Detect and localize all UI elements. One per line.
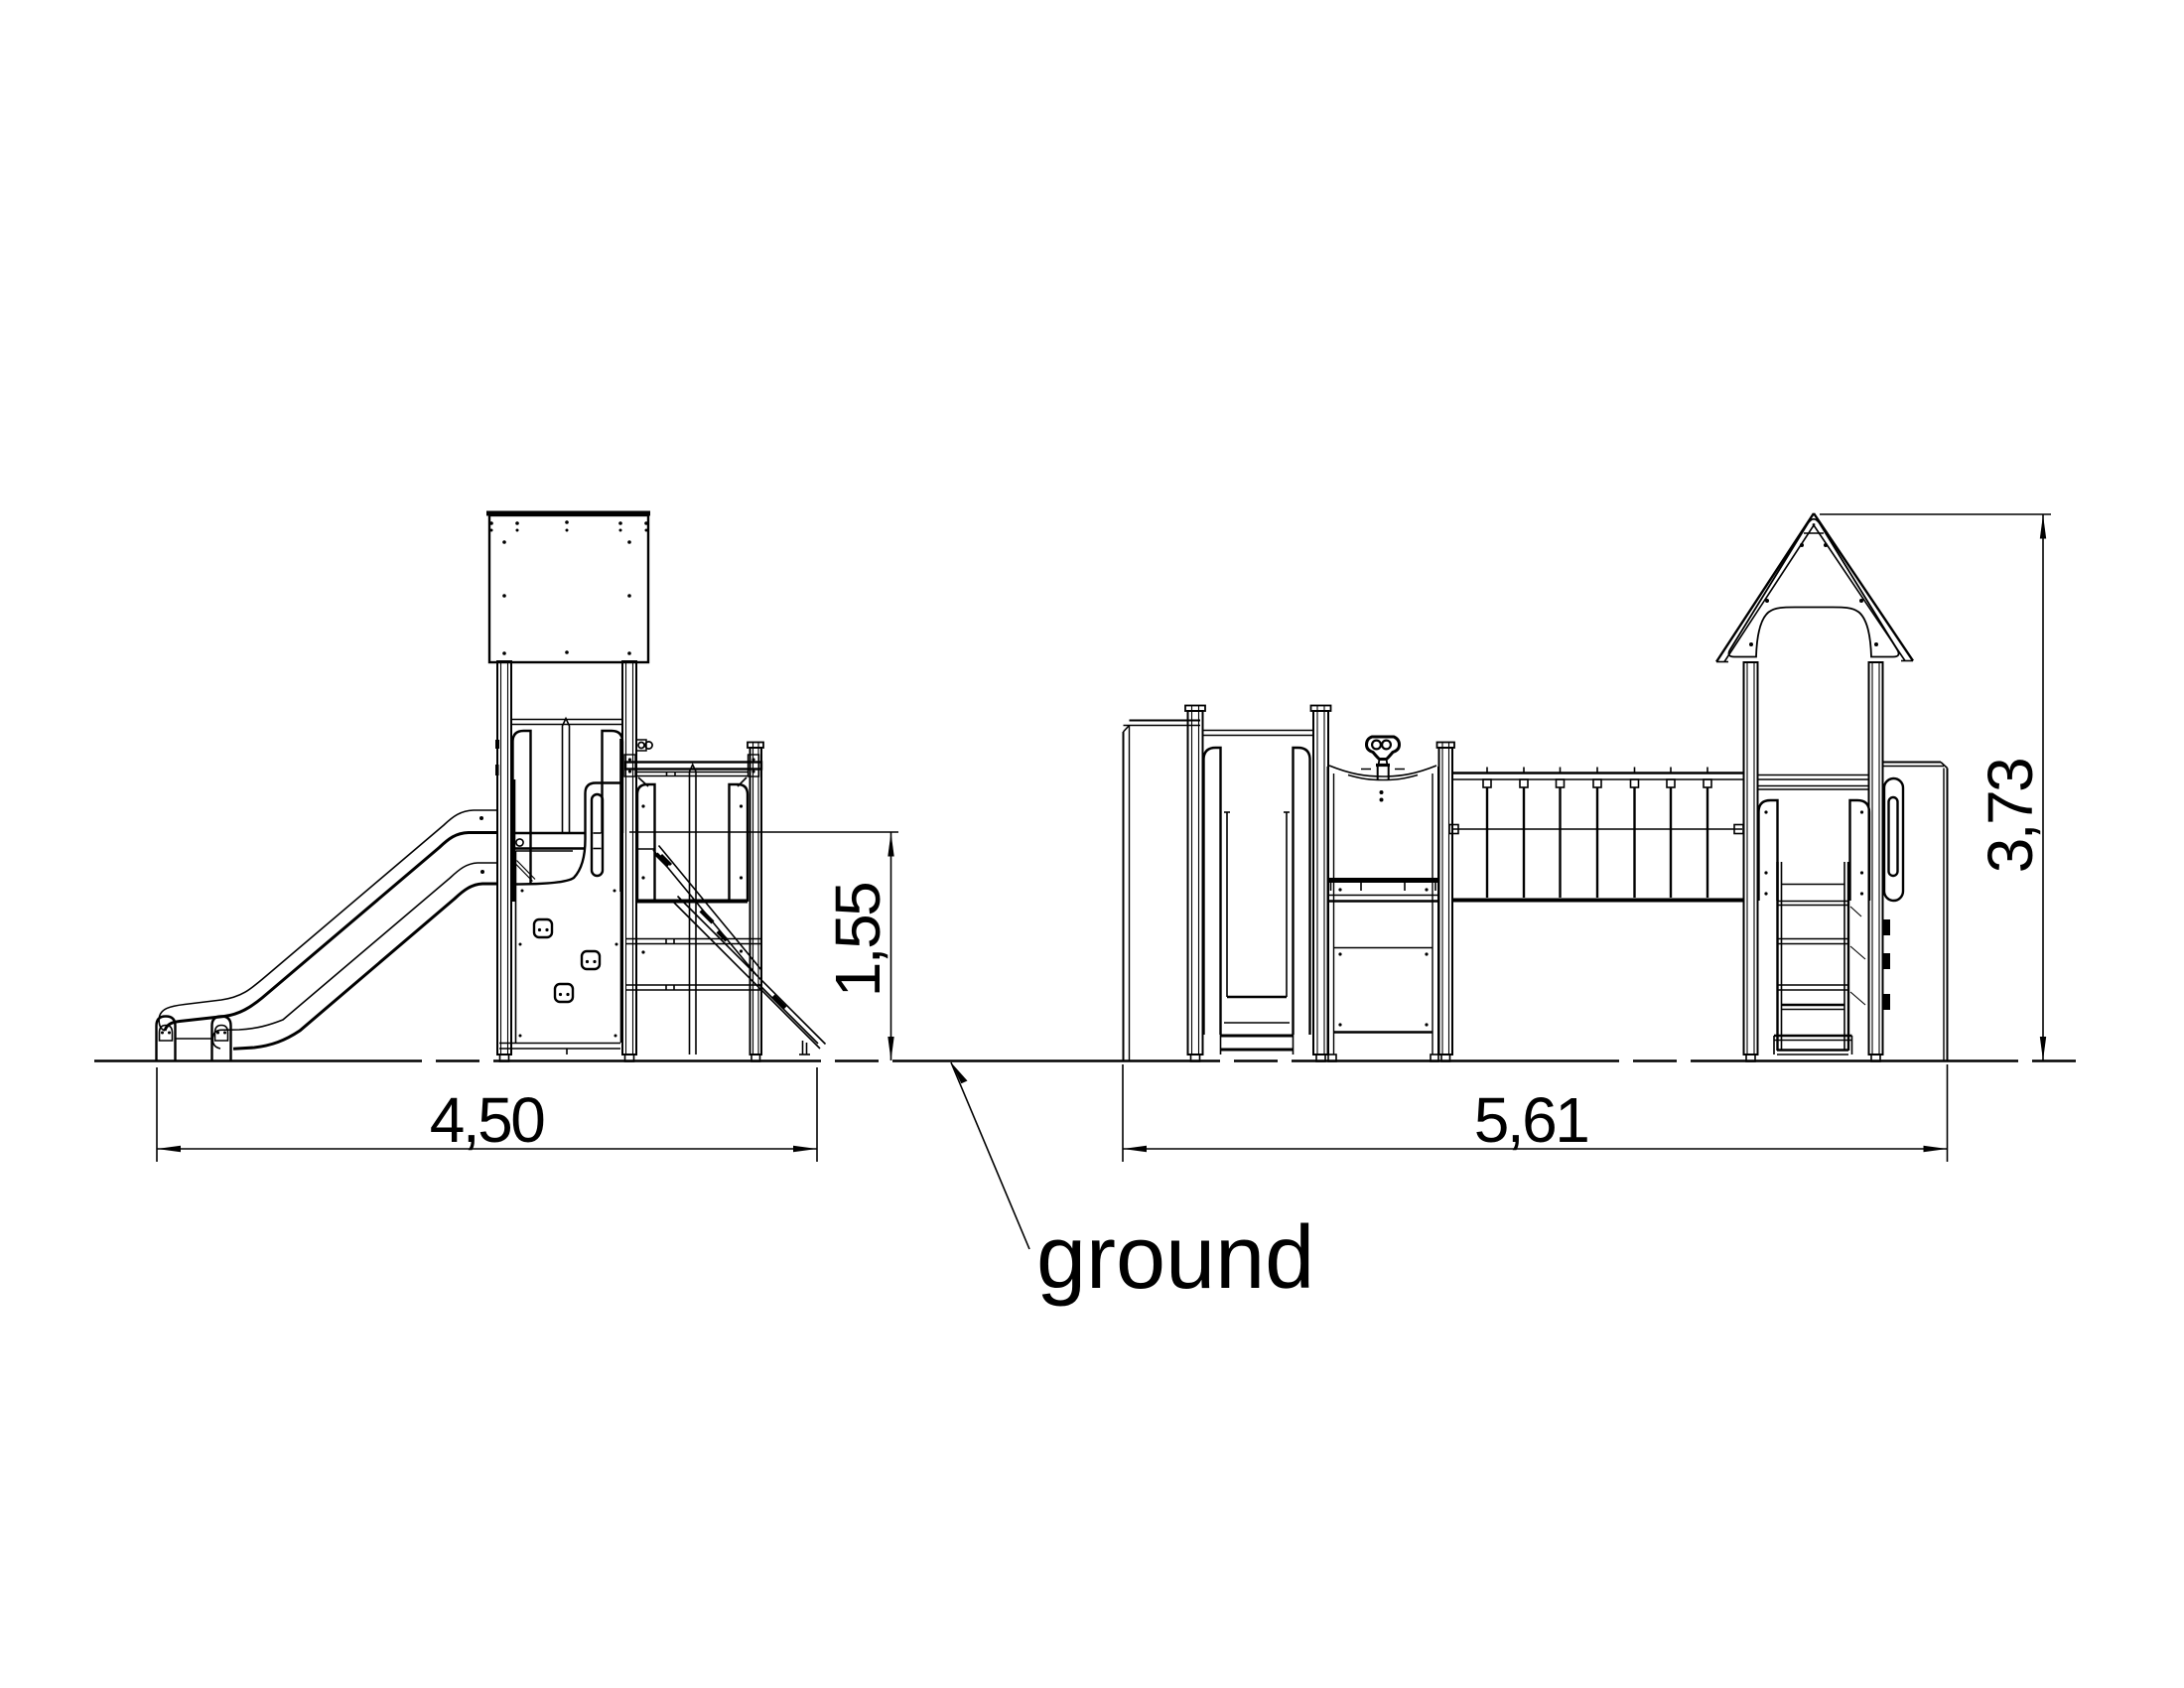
svg-text:ground: ground [1036, 1208, 1314, 1308]
svg-text:3,73: 3,73 [1975, 760, 2046, 874]
svg-text:4,50: 4,50 [430, 1084, 544, 1156]
svg-text:5,61: 5,61 [1474, 1084, 1588, 1156]
svg-text:1,55: 1,55 [822, 884, 893, 998]
